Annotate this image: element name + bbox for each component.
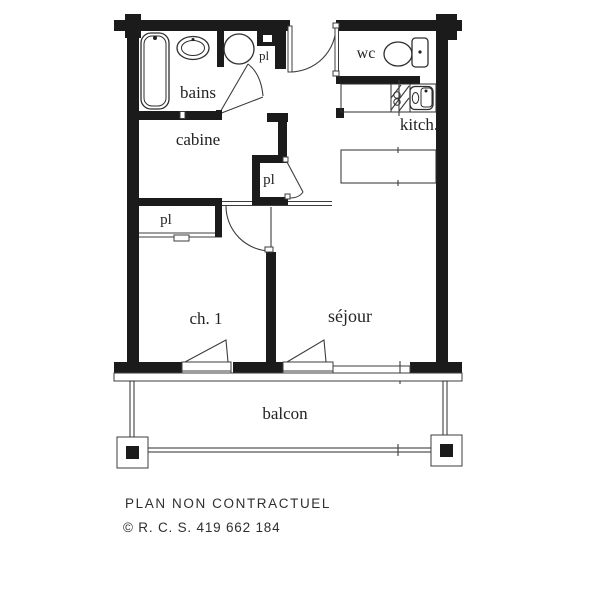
room-label-wc: wc bbox=[357, 45, 376, 62]
closet-door-leaf bbox=[219, 97, 263, 114]
closet-mid-door-leaf bbox=[287, 162, 303, 192]
bathtub bbox=[141, 33, 169, 109]
kitchen-sink-faucet bbox=[425, 90, 428, 93]
door-jamb bbox=[265, 247, 273, 252]
door-jamb bbox=[285, 194, 290, 199]
closet-mid-door-arc bbox=[290, 192, 303, 198]
cooktop-hatch bbox=[391, 86, 409, 110]
wc-door-leaf bbox=[335, 26, 339, 74]
duct-shaft-hole bbox=[263, 35, 272, 42]
sliding-door-leaf bbox=[174, 235, 189, 241]
door-jamb bbox=[180, 112, 185, 119]
balcony-rail-front bbox=[148, 448, 431, 452]
washbasin-faucet bbox=[192, 38, 195, 41]
interior-walls bbox=[135, 27, 420, 362]
wall-segment bbox=[114, 362, 182, 373]
room-label-living: séjour bbox=[328, 306, 372, 326]
wall-segment bbox=[127, 20, 139, 372]
floor-plan-page: bains pl wc kitch. cabine pl pl ch. 1 sé… bbox=[0, 0, 600, 600]
toilet-button bbox=[418, 50, 421, 53]
plan-copyright: © R. C. S. 419 662 184 bbox=[123, 520, 280, 535]
wall-segment bbox=[266, 252, 276, 362]
room-label-bains: bains bbox=[180, 83, 216, 102]
wall-segment bbox=[135, 111, 222, 120]
plan-disclaimer: PLAN NON CONTRACTUEL bbox=[125, 496, 331, 511]
wall-segment bbox=[278, 113, 287, 158]
window-swing-sejour bbox=[287, 340, 326, 362]
balcony-post-left-core bbox=[126, 446, 139, 459]
bains-door-arc bbox=[248, 64, 263, 96]
door-hinge bbox=[216, 110, 222, 117]
wall-segment bbox=[215, 206, 222, 237]
bedroom-door-arc bbox=[226, 206, 271, 251]
wall-segment bbox=[436, 20, 448, 372]
wall-segment bbox=[233, 362, 283, 373]
bar-counter bbox=[341, 150, 436, 183]
door-jamb bbox=[333, 71, 339, 76]
room-label-closet-low: pl bbox=[160, 212, 172, 228]
cooktop-hatch bbox=[399, 98, 409, 111]
door-jamb bbox=[283, 157, 288, 162]
wall-segment bbox=[252, 155, 260, 203]
balcony-rail-left bbox=[130, 381, 134, 437]
wall-segment bbox=[336, 108, 344, 118]
bains-door-leaf bbox=[219, 64, 248, 114]
door-jamb bbox=[333, 23, 339, 28]
room-label-cabine: cabine bbox=[176, 130, 220, 149]
entrance-door-arc bbox=[290, 26, 336, 72]
bathtub-faucet bbox=[153, 36, 157, 40]
toilet-bowl bbox=[384, 42, 412, 66]
balcony-slab bbox=[114, 373, 462, 381]
room-label-balcony: balcon bbox=[262, 404, 308, 423]
room-label-closet-top: pl bbox=[259, 48, 270, 63]
wall-segment bbox=[410, 362, 462, 373]
balcony-rail-right bbox=[443, 381, 447, 435]
water-heater bbox=[224, 34, 254, 64]
entrance-door-leaf bbox=[288, 26, 292, 72]
room-label-bedroom: ch. 1 bbox=[189, 309, 222, 328]
window-swing-ch1 bbox=[185, 340, 228, 362]
room-label-closet-mid: pl bbox=[263, 172, 275, 188]
wall-segment bbox=[336, 76, 420, 84]
room-label-kitchen: kitch. bbox=[400, 115, 438, 134]
balcony-post-right-core bbox=[440, 444, 453, 457]
wall-segment bbox=[252, 197, 288, 205]
wall-segment bbox=[135, 198, 222, 206]
wall-segment bbox=[114, 20, 290, 31]
wall-segment bbox=[217, 31, 224, 67]
